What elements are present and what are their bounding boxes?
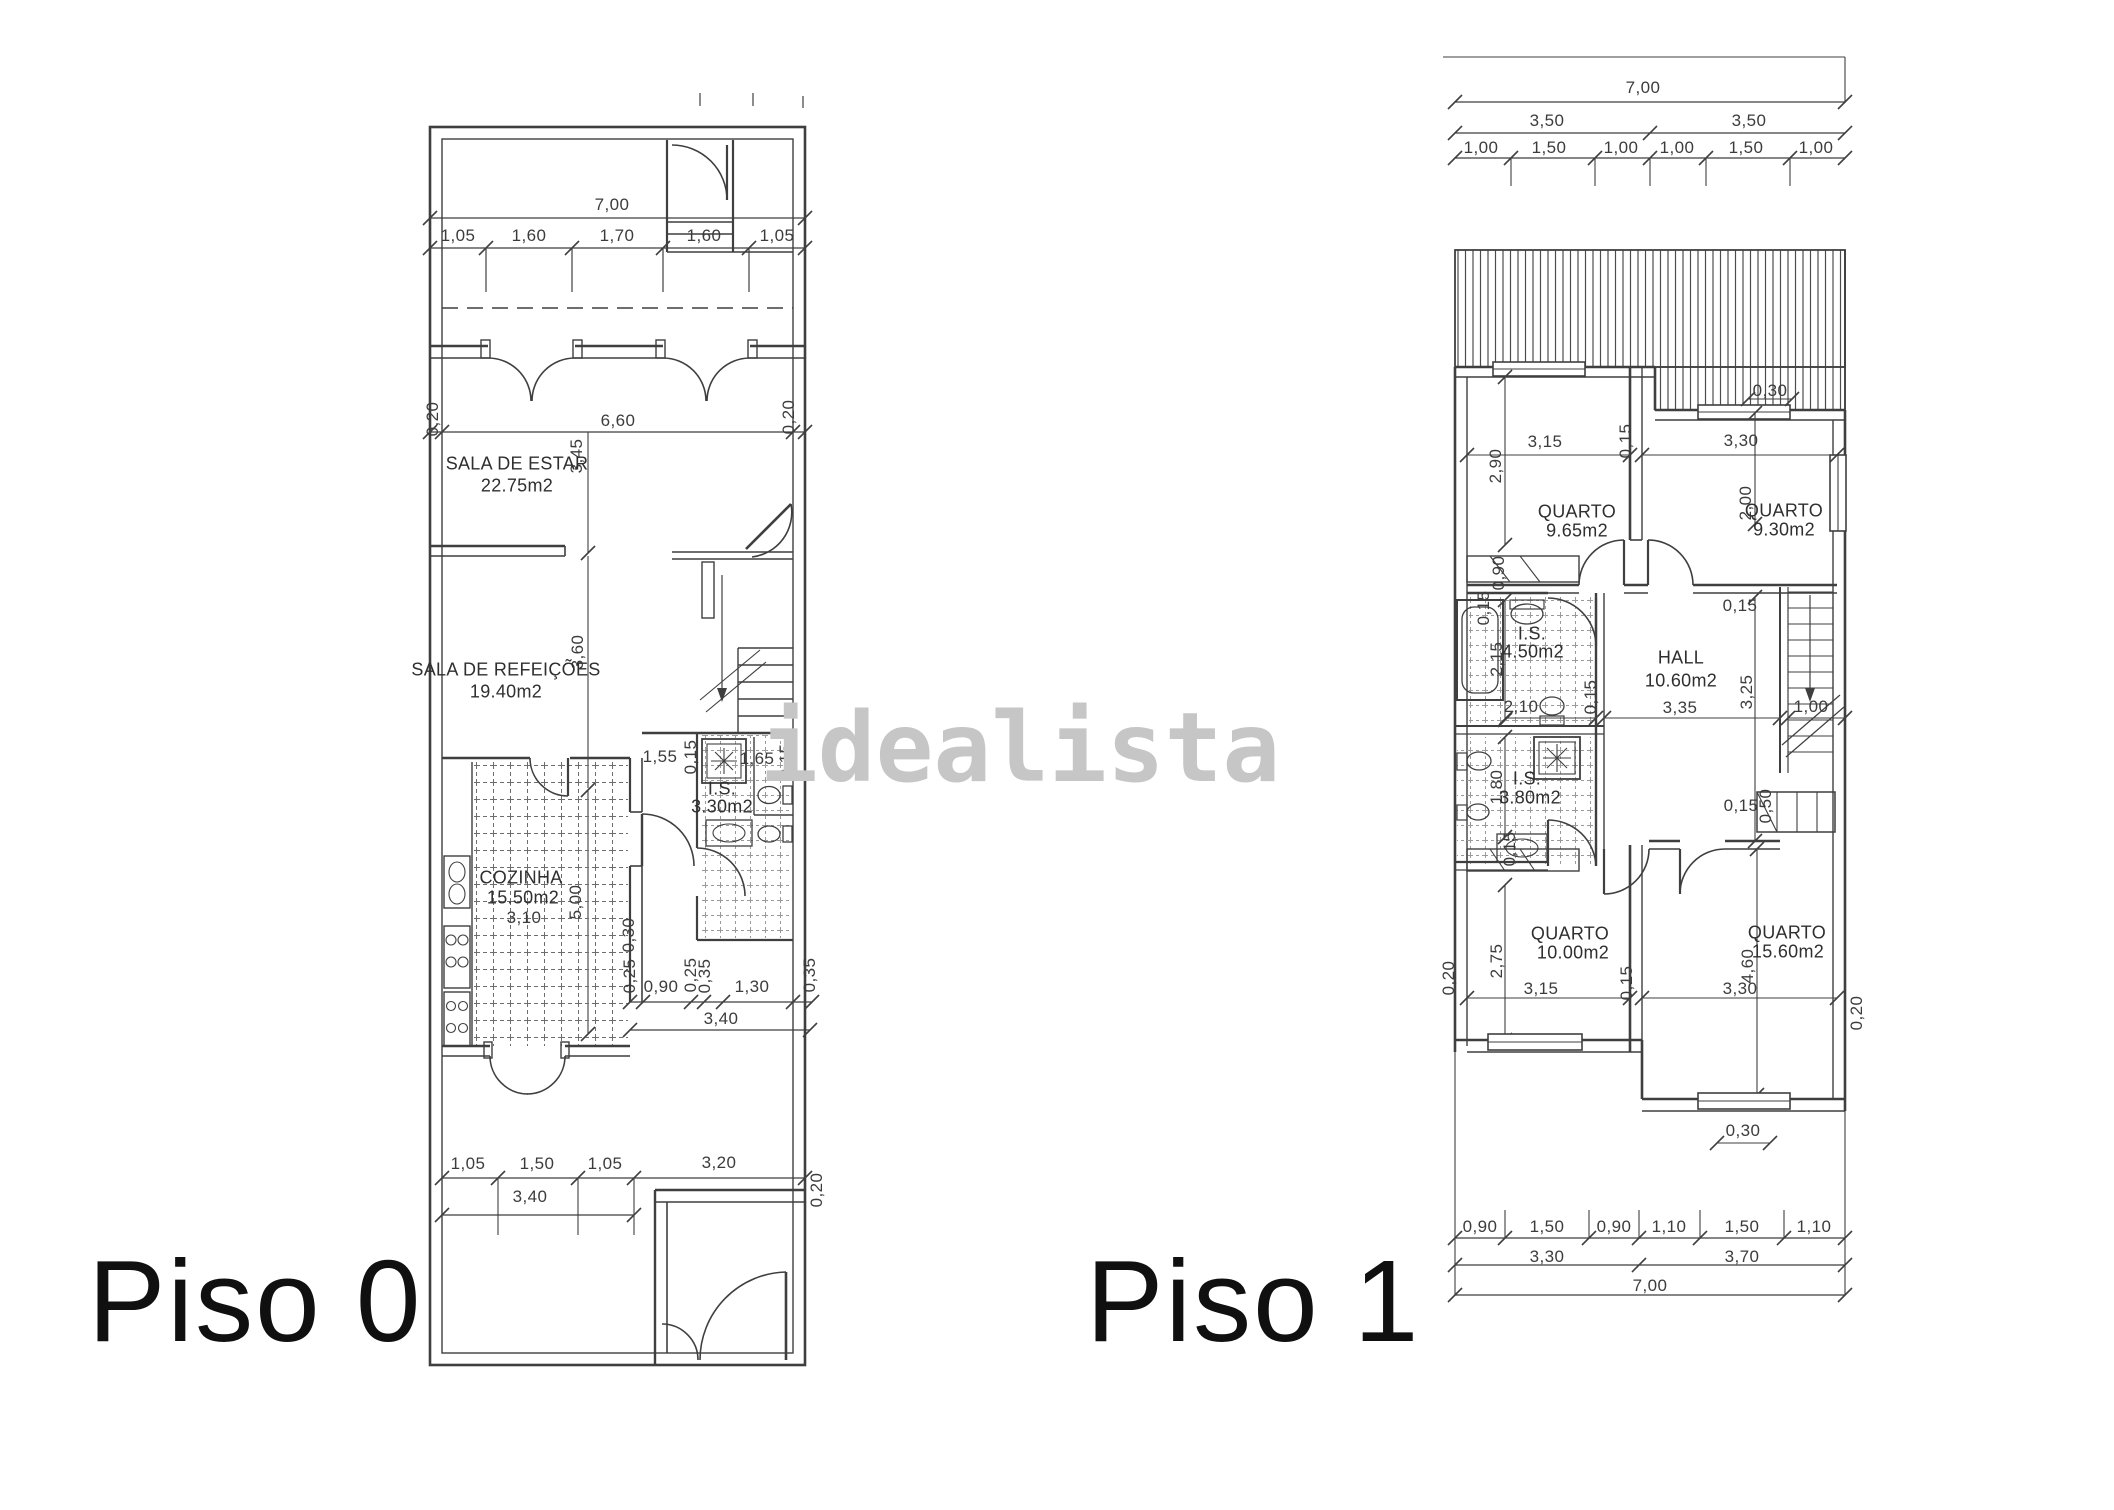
room-area-quarto-930: 9.30m2 xyxy=(1753,520,1815,541)
dimension-label: 3,50 xyxy=(1732,111,1767,131)
dimension-label: 7,00 xyxy=(595,195,630,215)
dimension-label: 0,90 xyxy=(1597,1217,1632,1237)
dimension-label: 1,55 xyxy=(643,747,678,767)
room-area-cozinha: 15.50m2 xyxy=(487,888,559,909)
room-label-quarto-1000: QUARTO xyxy=(1531,924,1609,945)
dimension-label: 1,00 xyxy=(1464,138,1499,158)
dimension-label: 0,90 xyxy=(1489,556,1509,591)
dimension-label: 3,30 xyxy=(1530,1247,1565,1267)
floorplan-page: { "watermark": "idealista", "piso0": { "… xyxy=(0,0,2114,1510)
dimension-label: 1,05 xyxy=(760,226,795,246)
dimension-label: 1,05 xyxy=(588,1154,623,1174)
room-label-hall: HALL xyxy=(1658,648,1704,669)
watermark-idealista: idealista xyxy=(760,700,1280,796)
room-area-quarto-1000: 10.00m2 xyxy=(1537,943,1609,964)
room-area-sala-de-estar: 22.75m2 xyxy=(481,476,553,497)
dimension-label: 7,00 xyxy=(1633,1276,1668,1296)
dimension-label: 5,00 xyxy=(566,885,586,920)
dimension-label: 0,20 xyxy=(1847,996,1867,1031)
dimension-label: 3,10 xyxy=(507,908,542,928)
floor-title-piso-0: Piso 0 xyxy=(88,1243,422,1359)
dimension-label: 0,15 xyxy=(1581,680,1601,715)
dimension-label: 0,15 xyxy=(1500,832,1520,867)
dimension-label: 0,35 xyxy=(800,958,820,993)
dimension-label: 0,20 xyxy=(423,402,443,437)
dimension-label: 0,15 xyxy=(1474,591,1494,626)
room-area-is-piso0: 3.30m2 xyxy=(691,797,753,818)
dimension-label: 1,05 xyxy=(441,226,476,246)
dimension-label: 0,15 xyxy=(681,740,701,775)
room-area-is-380: 3.80m2 xyxy=(1499,788,1561,809)
dimension-label: 1,50 xyxy=(520,1154,555,1174)
dimension-label: 3,40 xyxy=(704,1009,739,1029)
dimension-label: 3,15 xyxy=(1524,979,1559,999)
dimension-label: 3,15 xyxy=(1528,432,1563,452)
dimension-label: 1,30 xyxy=(735,977,770,997)
dimension-label: 0,15 xyxy=(1723,596,1758,616)
dimension-label: 1,00 xyxy=(1604,138,1639,158)
dimension-label: 3,30 xyxy=(1724,431,1759,451)
dimension-label: 1,00 xyxy=(1660,138,1695,158)
room-label-quarto-965: QUARTO xyxy=(1538,502,1616,523)
dimension-label: 0,25 xyxy=(620,959,640,994)
dimension-label: 3,70 xyxy=(1725,1247,1760,1267)
dimension-label: 0,50 xyxy=(1756,789,1776,824)
room-area-hall: 10.60m2 xyxy=(1645,671,1717,692)
dimension-label: 2,90 xyxy=(1486,449,1506,484)
dimension-label: 0,90 xyxy=(644,977,679,997)
dimension-label: 3,50 xyxy=(1530,111,1565,131)
dimension-label: 0,30 xyxy=(619,918,639,953)
dimension-label: 3,35 xyxy=(1663,698,1698,718)
dimension-label: 1,60 xyxy=(687,226,722,246)
room-label-sala-de-estar: SALA DE ESTAR xyxy=(446,454,589,475)
room-area-quarto-1560: 15.60m2 xyxy=(1752,942,1824,963)
dimension-label: 0,15 xyxy=(1616,424,1636,459)
dimension-label: 0,30 xyxy=(1753,381,1788,401)
dimension-label: 1,10 xyxy=(1797,1217,1832,1237)
dimension-label: 0,20 xyxy=(1439,961,1459,996)
room-area-quarto-965: 9.65m2 xyxy=(1546,521,1608,542)
dimension-label: 0,30 xyxy=(1726,1121,1761,1141)
room-area-sala-de-refeicoes: 19.40m2 xyxy=(470,682,542,703)
room-label-cozinha: COZINHA xyxy=(479,868,562,889)
room-label-quarto-1560: QUARTO xyxy=(1748,923,1826,944)
dimension-label: 3,40 xyxy=(513,1187,548,1207)
dimension-label: 1,00 xyxy=(1799,138,1834,158)
room-label-sala-de-refeicoes: SALA DE REFEIÇÕES xyxy=(411,660,600,681)
room-label-quarto-930: QUARTO xyxy=(1745,501,1823,522)
dimension-label: 6,60 xyxy=(601,411,636,431)
dimension-label: 2,10 xyxy=(1504,697,1539,717)
dimension-label: 0,20 xyxy=(807,1173,827,1208)
dimension-label: 3,20 xyxy=(702,1153,737,1173)
dimension-label: 1,60 xyxy=(512,226,547,246)
dimension-label: 1,00 xyxy=(1794,697,1829,717)
dimension-label: 0,15 xyxy=(1617,966,1637,1001)
dimension-label: 3,30 xyxy=(1723,979,1758,999)
dimension-label: 1,50 xyxy=(1532,138,1567,158)
dimension-label: 1,70 xyxy=(600,226,635,246)
dimension-label: 7,00 xyxy=(1626,78,1661,98)
dimension-label: 0,90 xyxy=(1463,1217,1498,1237)
dimension-label: 0,20 xyxy=(779,400,799,435)
dimension-label: 3,25 xyxy=(1737,675,1757,710)
dimension-label: 0,35 xyxy=(695,959,715,994)
floor-title-piso-1: Piso 1 xyxy=(1086,1243,1420,1359)
dimension-label: 1,50 xyxy=(1729,138,1764,158)
room-area-is-450: 4.50m2 xyxy=(1502,642,1564,663)
dimension-label: 1,10 xyxy=(1652,1217,1687,1237)
dimension-label: 1,50 xyxy=(1725,1217,1760,1237)
room-label-is-380: I.S. xyxy=(1513,769,1541,790)
dimension-label: 1,50 xyxy=(1530,1217,1565,1237)
dimension-label: 0,15 xyxy=(1724,796,1759,816)
dimension-label: 2,75 xyxy=(1487,944,1507,979)
dimension-label: 1,05 xyxy=(451,1154,486,1174)
